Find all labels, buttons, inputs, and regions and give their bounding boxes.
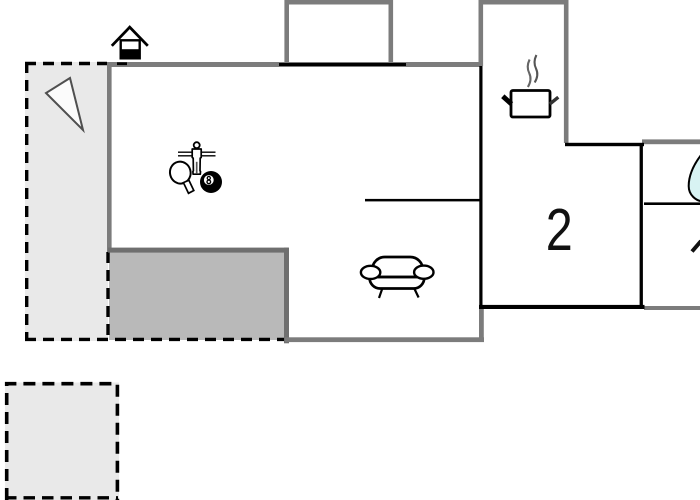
svg-text:2: 2 bbox=[546, 197, 573, 263]
